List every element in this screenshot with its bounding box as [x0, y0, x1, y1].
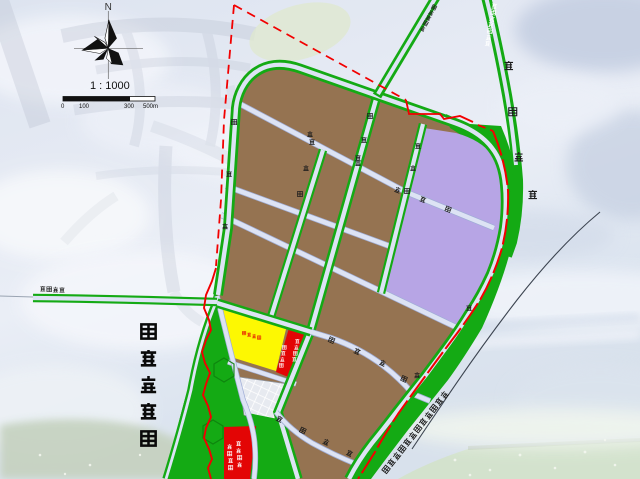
svg-text:1 : 1000: 1 : 1000 [90, 80, 130, 92]
svg-text:300: 300 [124, 104, 135, 110]
svg-text:100: 100 [79, 104, 90, 110]
svg-text:500m: 500m [143, 104, 158, 110]
